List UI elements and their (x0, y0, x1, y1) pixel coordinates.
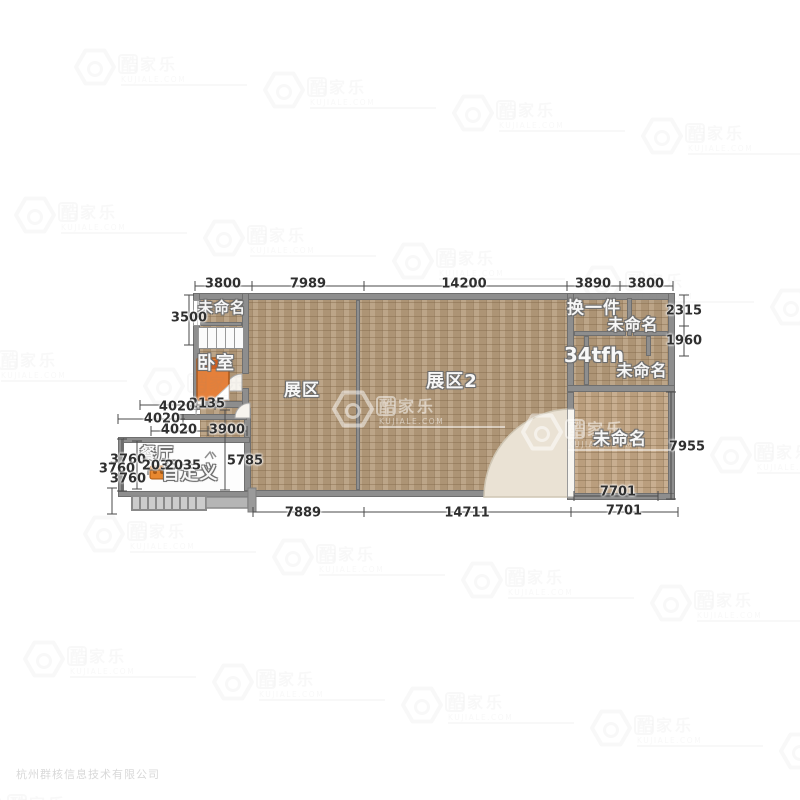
watermark-tile: 酷家乐KUJIALE.COM (25, 643, 196, 678)
dim-bottom-1: 7889 (285, 506, 321, 521)
svg-text:KUJIALE.COM: KUJIALE.COM (259, 690, 324, 699)
dim-top-2: 7989 (290, 277, 326, 292)
watermark-tile: 酷家乐KUJIALE.COM (652, 587, 800, 622)
svg-text:酷家乐: 酷家乐 (499, 101, 556, 120)
svg-text:KUJIALE.COM: KUJIALE.COM (319, 565, 384, 574)
svg-text:酷家乐: 酷家乐 (757, 443, 800, 462)
svg-text:酷家乐: 酷家乐 (121, 55, 178, 74)
dim-right-2: 1960 (666, 334, 702, 349)
watermark-tile: 酷家乐KUJIALE.COM (712, 439, 800, 474)
svg-text:酷家乐: 酷家乐 (1, 351, 58, 370)
svg-text:酷家乐: 酷家乐 (637, 716, 694, 735)
svg-text:KUJIALE.COM: KUJIALE.COM (637, 736, 702, 745)
dim-left-3760c: 3760 (110, 472, 146, 487)
svg-text:酷家乐: 酷家乐 (61, 203, 118, 222)
watermark-layer: 酷家乐KUJIALE.COM酷家乐KUJIALE.COM酷家乐KUJIALE.C… (0, 51, 800, 800)
door-arc-hall-entry (235, 403, 250, 418)
dim-left-2035b: 2035 (165, 459, 201, 474)
dim-right-3: 7955 (669, 440, 705, 455)
dim-left-5785: 5785 (227, 454, 263, 469)
copyright-text: 杭州群核信息技术有限公司 (16, 766, 160, 782)
svg-text:KUJIALE.COM: KUJIALE.COM (448, 713, 513, 722)
watermark-tile: 酷家乐KUJIALE.COM (0, 347, 127, 382)
watermark-tile: 酷家乐KUJIALE.COM (214, 666, 385, 701)
watermark-tile: 酷家乐KUJIALE.COM (205, 222, 376, 257)
svg-text:酷家乐: 酷家乐 (70, 647, 127, 666)
watermark-tile: 酷家乐KUJIALE.COM (403, 689, 574, 724)
watermark-tile: 酷家乐KUJIALE.COM (0, 791, 136, 800)
svg-text:KUJIALE.COM: KUJIALE.COM (508, 588, 573, 597)
watermark-tile: 酷家乐KUJIALE.COM (772, 291, 800, 326)
svg-text:酷家乐: 酷家乐 (439, 249, 496, 268)
dim-bottom-2: 14711 (444, 506, 489, 521)
watermark-tile: 酷家乐KUJIALE.COM (394, 245, 565, 280)
svg-text:KUJIALE.COM: KUJIALE.COM (628, 292, 693, 301)
svg-text:KUJIALE.COM: KUJIALE.COM (121, 75, 186, 84)
room-label-unnamed-topright1: 未命名 (607, 311, 658, 335)
svg-text:酷家乐: 酷家乐 (379, 397, 436, 416)
svg-text:KUJIALE.COM: KUJIALE.COM (70, 667, 135, 676)
freehand-mark (205, 452, 216, 459)
watermark-tile: 酷家乐KUJIALE.COM (643, 120, 800, 155)
svg-text:酷家乐: 酷家乐 (697, 591, 754, 610)
svg-text:酷家乐: 酷家乐 (190, 374, 247, 393)
svg-text:KUJIALE.COM: KUJIALE.COM (250, 246, 315, 255)
room-label-unnamed-topright2: 未命名 (616, 357, 667, 381)
watermark-tile: 酷家乐KUJIALE.COM (454, 97, 625, 132)
dim-bottom-3: 7701 (600, 485, 636, 500)
svg-text:酷家乐: 酷家乐 (310, 78, 367, 97)
svg-text:KUJIALE.COM: KUJIALE.COM (130, 542, 195, 551)
dim-left-3900: 3900 (209, 423, 245, 438)
dim-right-1: 2315 (666, 304, 702, 319)
room-label-hall2: 展区2 (426, 367, 478, 393)
watermark-tile: 酷家乐KUJIALE.COM (781, 735, 800, 770)
watermark-tile: 酷家乐KUJIALE.COM (85, 518, 256, 553)
svg-text:KUJIALE.COM: KUJIALE.COM (310, 98, 375, 107)
svg-text:酷家乐: 酷家乐 (130, 522, 187, 541)
svg-text:酷家乐: 酷家乐 (259, 670, 316, 689)
svg-text:KUJIALE.COM: KUJIALE.COM (697, 611, 762, 620)
svg-text:酷家乐: 酷家乐 (10, 795, 67, 800)
svg-text:KUJIALE.COM: KUJIALE.COM (379, 417, 444, 426)
svg-text:酷家乐: 酷家乐 (250, 226, 307, 245)
dim-bottom-4: 7701 (606, 504, 642, 519)
watermark-tile: 酷家乐KUJIALE.COM (334, 393, 505, 428)
svg-text:酷家乐: 酷家乐 (319, 545, 376, 564)
dim-top-4: 3890 (575, 277, 611, 292)
svg-text:KUJIALE.COM: KUJIALE.COM (1, 371, 66, 380)
plan-overlay: 酷家乐KUJIALE.COM酷家乐KUJIALE.COM酷家乐KUJIALE.C… (0, 0, 800, 800)
dim-top-5: 3800 (628, 277, 664, 292)
room-label-bedroom: 卧室 (197, 349, 235, 375)
svg-text:KUJIALE.COM: KUJIALE.COM (688, 144, 753, 153)
room-label-34tfh: 34tfh (564, 343, 624, 367)
dim-left-3500: 3500 (171, 311, 207, 326)
stairs (132, 488, 256, 512)
stair-stub (248, 488, 256, 512)
watermark-tile: 酷家乐KUJIALE.COM (265, 74, 436, 109)
dim-left-4020c: 4020 (161, 423, 197, 438)
watermark-tile: 酷家乐KUJIALE.COM (16, 199, 187, 234)
watermark-tile: 酷家乐KUJIALE.COM (592, 712, 763, 747)
svg-text:KUJIALE.COM: KUJIALE.COM (499, 121, 564, 130)
watermark-tile: 酷家乐KUJIALE.COM (463, 564, 634, 599)
stair-landing (206, 497, 248, 508)
room-label-hall1: 展区 (284, 376, 320, 401)
watermark-tile: 酷家乐KUJIALE.COM (76, 51, 247, 86)
room-label-unnamed-bottomright: 未命名 (593, 425, 647, 450)
svg-text:酷家乐: 酷家乐 (508, 568, 565, 587)
svg-text:酷家乐: 酷家乐 (688, 124, 745, 143)
svg-text:KUJIALE.COM: KUJIALE.COM (757, 463, 800, 472)
svg-text:KUJIALE.COM: KUJIALE.COM (61, 223, 126, 232)
dim-top-3: 14200 (441, 277, 486, 292)
floor-plan-canvas: 酷家乐KUJIALE.COM酷家乐KUJIALE.COM酷家乐KUJIALE.C… (0, 0, 800, 800)
svg-text:酷家乐: 酷家乐 (448, 693, 505, 712)
watermark-tile: 酷家乐KUJIALE.COM (274, 541, 445, 576)
dim-top-1: 3800 (205, 277, 241, 292)
